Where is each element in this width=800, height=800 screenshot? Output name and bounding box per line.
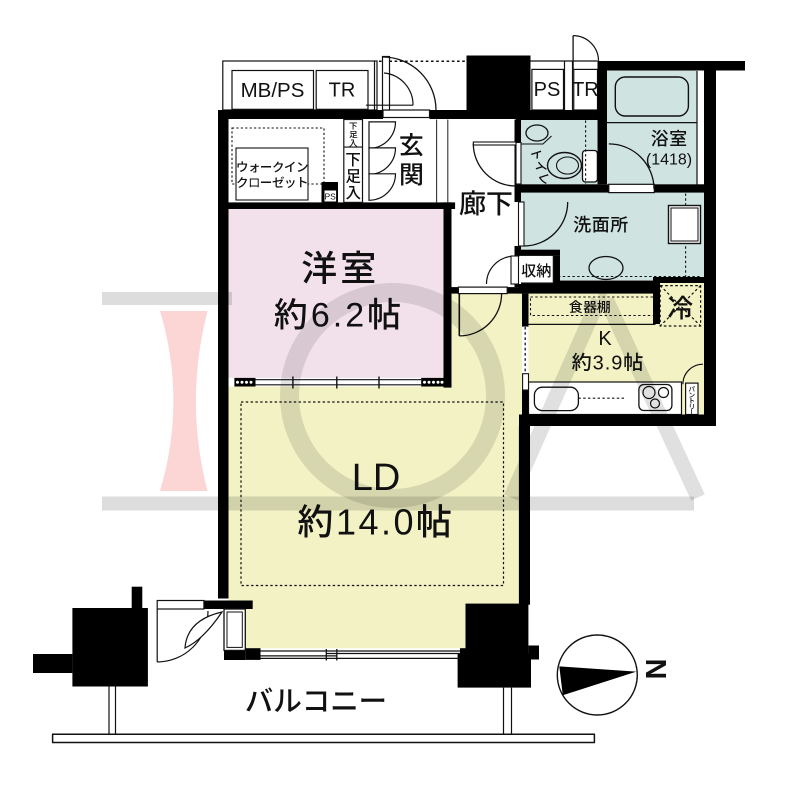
svg-text:浴室: 浴室: [651, 125, 687, 151]
svg-text:入: 入: [346, 181, 362, 203]
svg-text:N: N: [639, 659, 671, 680]
svg-text:PS: PS: [534, 79, 561, 101]
svg-text:洋室: 洋室: [301, 240, 379, 292]
svg-text:廊下: 廊下: [459, 182, 513, 221]
svg-text:関: 関: [399, 156, 424, 192]
svg-text:ー: ー: [687, 409, 697, 416]
svg-text:MB/PS: MB/PS: [241, 79, 305, 102]
svg-text:PS: PS: [325, 191, 337, 201]
svg-text:収納: 収納: [521, 260, 551, 281]
svg-text:冷: 冷: [667, 289, 693, 326]
svg-text:(1418): (1418): [646, 152, 692, 169]
svg-text:バルコニー: バルコニー: [245, 679, 388, 720]
svg-text:クローゼット: クローゼット: [236, 172, 308, 191]
svg-text:TR: TR: [329, 80, 356, 102]
svg-text:TR: TR: [572, 79, 599, 101]
svg-text:洗面所: 洗面所: [573, 211, 629, 237]
